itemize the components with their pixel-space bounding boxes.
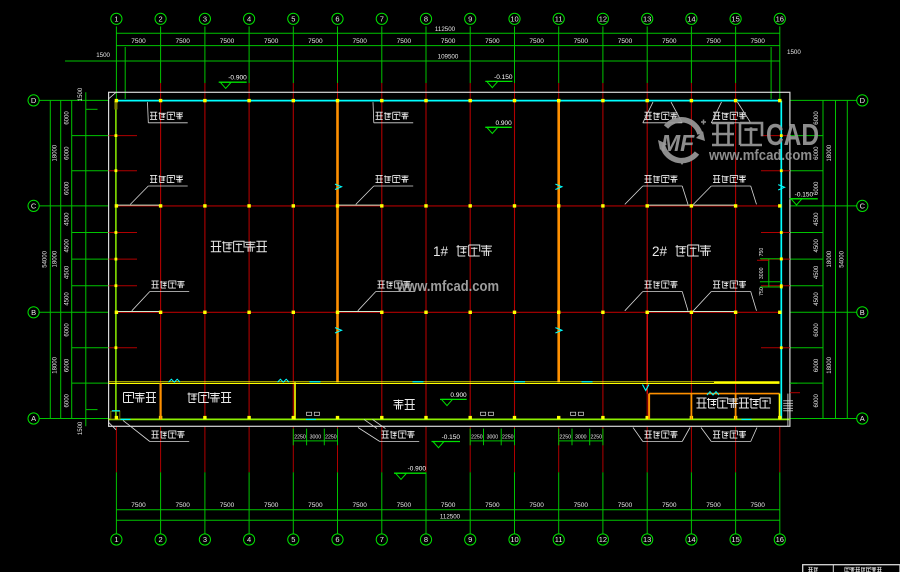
svg-text:750: 750: [759, 287, 765, 296]
svg-text:4500: 4500: [814, 212, 820, 226]
svg-text:12: 12: [599, 535, 607, 544]
svg-text:3000: 3000: [487, 434, 499, 440]
svg-text:6000: 6000: [814, 358, 820, 372]
svg-text:7500: 7500: [529, 38, 544, 45]
svg-text:7500: 7500: [175, 38, 190, 45]
svg-text:16: 16: [776, 535, 784, 544]
svg-text:15: 15: [731, 14, 739, 23]
svg-text:7500: 7500: [662, 502, 677, 509]
svg-text:4500: 4500: [65, 238, 71, 252]
svg-text:1500: 1500: [96, 52, 110, 59]
svg-text:0.900: 0.900: [450, 392, 467, 399]
svg-text:6000: 6000: [814, 323, 820, 337]
svg-text:18000: 18000: [53, 144, 59, 161]
svg-text:3000: 3000: [575, 434, 587, 440]
svg-text:12: 12: [599, 14, 607, 23]
svg-text:18000: 18000: [827, 250, 833, 267]
svg-text:7500: 7500: [441, 502, 456, 509]
svg-text:-0.900: -0.900: [228, 75, 247, 82]
svg-text:7500: 7500: [618, 38, 633, 45]
svg-text:6000: 6000: [65, 111, 71, 125]
svg-text:www.mfcad.com: www.mfcad.com: [396, 278, 499, 295]
svg-text:2250: 2250: [471, 434, 483, 440]
svg-text:7500: 7500: [131, 502, 146, 509]
svg-text:A: A: [860, 414, 865, 423]
svg-text:6: 6: [335, 14, 339, 23]
svg-text:1500: 1500: [78, 421, 84, 435]
svg-text:4500: 4500: [814, 265, 820, 279]
svg-text:7500: 7500: [750, 502, 765, 509]
svg-text:6000: 6000: [65, 323, 71, 337]
svg-text:2250: 2250: [294, 434, 306, 440]
svg-text:16: 16: [776, 14, 784, 23]
svg-text:7500: 7500: [264, 38, 279, 45]
svg-text:54000: 54000: [840, 250, 846, 267]
svg-text:D: D: [860, 96, 866, 105]
svg-text:4: 4: [247, 535, 251, 544]
svg-text:7: 7: [380, 14, 384, 23]
svg-text:C: C: [31, 202, 37, 211]
svg-text:-0.150: -0.150: [442, 434, 461, 441]
svg-text:14: 14: [687, 535, 695, 544]
svg-text:18000: 18000: [53, 356, 59, 373]
svg-text:7500: 7500: [441, 38, 456, 45]
svg-text:6000: 6000: [65, 181, 71, 195]
svg-text:B: B: [31, 308, 36, 317]
svg-text:7500: 7500: [529, 502, 544, 509]
svg-text:112500: 112500: [435, 26, 456, 33]
svg-text:4: 4: [247, 14, 251, 23]
svg-text:4500: 4500: [65, 212, 71, 226]
svg-text:2250: 2250: [325, 434, 337, 440]
svg-text:1: 1: [114, 14, 118, 23]
svg-text:18000: 18000: [53, 250, 59, 267]
svg-text:7500: 7500: [264, 502, 279, 509]
svg-text:6: 6: [335, 535, 339, 544]
svg-text:4500: 4500: [65, 265, 71, 279]
svg-text:15: 15: [731, 535, 739, 544]
svg-text:MF: MF: [661, 130, 695, 156]
svg-text:A: A: [31, 414, 36, 423]
svg-text:14: 14: [687, 14, 695, 23]
svg-text:1#: 1#: [433, 244, 449, 259]
svg-text:750: 750: [759, 248, 765, 257]
svg-text:-0.150: -0.150: [795, 191, 814, 198]
svg-text:2250: 2250: [502, 434, 514, 440]
svg-text:5: 5: [291, 535, 295, 544]
svg-text:7500: 7500: [308, 502, 323, 509]
svg-text:7500: 7500: [485, 502, 500, 509]
svg-text:9: 9: [468, 535, 472, 544]
svg-text:7500: 7500: [220, 38, 235, 45]
svg-text:7: 7: [380, 535, 384, 544]
svg-text:2: 2: [159, 14, 163, 23]
svg-text:109500: 109500: [438, 54, 459, 61]
svg-text:7500: 7500: [397, 502, 412, 509]
svg-text:C: C: [860, 202, 866, 211]
svg-text:18000: 18000: [827, 144, 833, 161]
svg-text:7500: 7500: [706, 502, 721, 509]
svg-text:6000: 6000: [814, 393, 820, 407]
svg-text:4500: 4500: [814, 292, 820, 306]
svg-text:11: 11: [555, 14, 563, 23]
svg-text:8: 8: [424, 535, 428, 544]
svg-text:2250: 2250: [591, 434, 603, 440]
svg-text:7500: 7500: [574, 38, 589, 45]
svg-text:5: 5: [291, 14, 295, 23]
svg-text:10: 10: [510, 14, 518, 23]
svg-text:7500: 7500: [662, 38, 677, 45]
svg-text:7500: 7500: [352, 502, 367, 509]
svg-text:112500: 112500: [440, 513, 461, 520]
svg-text:0.900: 0.900: [496, 120, 513, 127]
svg-text:13: 13: [643, 14, 651, 23]
svg-text:7500: 7500: [220, 502, 235, 509]
svg-text:6000: 6000: [65, 146, 71, 160]
svg-text:7500: 7500: [131, 38, 146, 45]
svg-text:www.mfcad.com: www.mfcad.com: [708, 147, 812, 164]
svg-text:2: 2: [159, 535, 163, 544]
svg-text:7500: 7500: [352, 38, 367, 45]
svg-text:3: 3: [203, 535, 207, 544]
svg-text:7500: 7500: [706, 38, 721, 45]
svg-text:1: 1: [114, 535, 118, 544]
svg-text:3: 3: [203, 14, 207, 23]
svg-text:7500: 7500: [618, 502, 633, 509]
svg-text:6000: 6000: [65, 393, 71, 407]
svg-text:11: 11: [555, 535, 563, 544]
svg-text:-0.900: -0.900: [408, 466, 427, 473]
svg-text:2#: 2#: [652, 244, 668, 259]
svg-text:54000: 54000: [43, 250, 49, 267]
svg-text:1500: 1500: [78, 87, 84, 101]
svg-text:6000: 6000: [65, 358, 71, 372]
svg-text:-0.150: -0.150: [494, 74, 513, 81]
svg-text:7500: 7500: [485, 38, 500, 45]
svg-text:4500: 4500: [65, 292, 71, 306]
svg-text:2250: 2250: [560, 434, 572, 440]
svg-text:D: D: [31, 96, 37, 105]
svg-text:3000: 3000: [310, 434, 322, 440]
svg-text:3000: 3000: [759, 267, 765, 279]
svg-text:9: 9: [468, 14, 472, 23]
svg-text:7500: 7500: [397, 38, 412, 45]
svg-text:10: 10: [510, 535, 518, 544]
svg-text:7500: 7500: [750, 38, 765, 45]
svg-text:8: 8: [424, 14, 428, 23]
svg-text:18000: 18000: [827, 356, 833, 373]
svg-text:13: 13: [643, 535, 651, 544]
svg-text:6000: 6000: [814, 181, 820, 195]
svg-text:7500: 7500: [308, 38, 323, 45]
svg-text:B: B: [860, 308, 865, 317]
svg-text:1500: 1500: [787, 49, 801, 56]
svg-text:7500: 7500: [175, 502, 190, 509]
svg-text:7500: 7500: [574, 502, 589, 509]
svg-text:4500: 4500: [814, 238, 820, 252]
